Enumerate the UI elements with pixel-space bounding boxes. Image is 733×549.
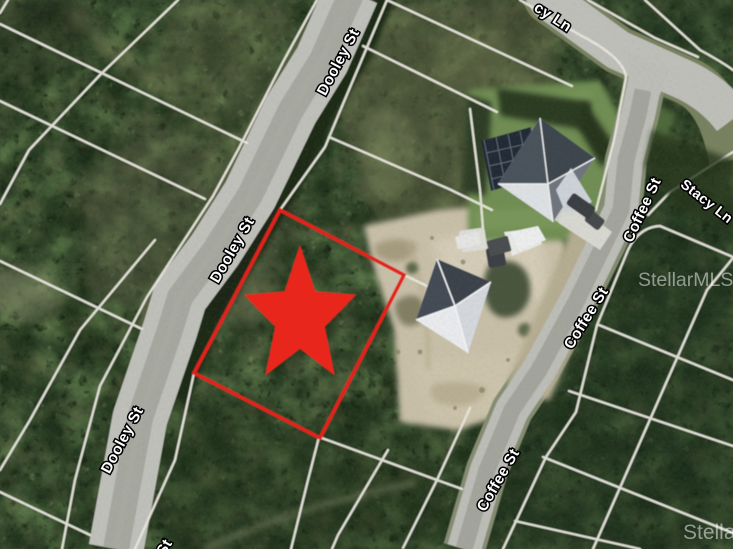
svg-text:StellarML: StellarML [683, 521, 733, 544]
svg-text:StellarMLS: StellarMLS [638, 269, 733, 291]
